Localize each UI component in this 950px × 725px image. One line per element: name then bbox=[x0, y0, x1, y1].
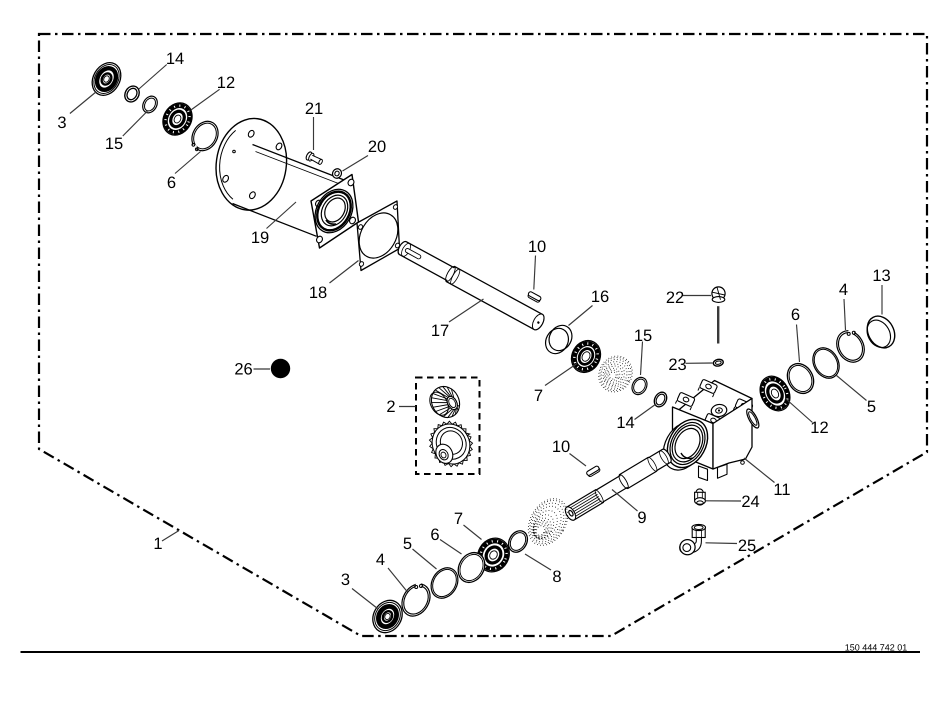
svg-text:22: 22 bbox=[666, 289, 684, 307]
svg-text:16: 16 bbox=[591, 288, 609, 306]
svg-text:15: 15 bbox=[105, 135, 123, 153]
svg-text:19: 19 bbox=[251, 229, 269, 247]
svg-text:26: 26 bbox=[234, 360, 252, 378]
svg-text:10: 10 bbox=[552, 438, 570, 456]
svg-text:12: 12 bbox=[217, 74, 235, 92]
svg-text:6: 6 bbox=[167, 174, 176, 192]
svg-text:1: 1 bbox=[153, 535, 162, 553]
svg-text:8: 8 bbox=[552, 568, 561, 586]
svg-text:24: 24 bbox=[741, 493, 759, 511]
svg-text:9: 9 bbox=[637, 509, 646, 527]
svg-text:25: 25 bbox=[738, 537, 756, 555]
svg-text:11: 11 bbox=[773, 481, 790, 499]
svg-text:21: 21 bbox=[305, 100, 323, 118]
svg-text:7: 7 bbox=[454, 510, 463, 528]
svg-text:14: 14 bbox=[166, 50, 184, 68]
svg-text:4: 4 bbox=[376, 551, 385, 569]
svg-text:4: 4 bbox=[839, 281, 848, 299]
svg-text:15: 15 bbox=[634, 327, 652, 345]
svg-text:18: 18 bbox=[309, 284, 327, 302]
svg-text:23: 23 bbox=[668, 356, 686, 374]
svg-text:20: 20 bbox=[368, 138, 386, 156]
svg-text:14: 14 bbox=[616, 414, 634, 432]
svg-text:6: 6 bbox=[791, 306, 800, 324]
svg-text:3: 3 bbox=[57, 114, 66, 132]
svg-text:12: 12 bbox=[810, 419, 828, 437]
svg-text:13: 13 bbox=[872, 267, 890, 285]
svg-text:17: 17 bbox=[431, 322, 449, 340]
svg-text:10: 10 bbox=[528, 238, 546, 256]
svg-text:2: 2 bbox=[386, 398, 395, 416]
svg-text:6: 6 bbox=[430, 526, 439, 544]
svg-text:7: 7 bbox=[534, 387, 543, 405]
svg-text:5: 5 bbox=[867, 398, 876, 416]
svg-text:5: 5 bbox=[403, 535, 412, 553]
svg-text:150 444 742 01: 150 444 742 01 bbox=[845, 642, 908, 652]
svg-text:3: 3 bbox=[341, 571, 350, 589]
